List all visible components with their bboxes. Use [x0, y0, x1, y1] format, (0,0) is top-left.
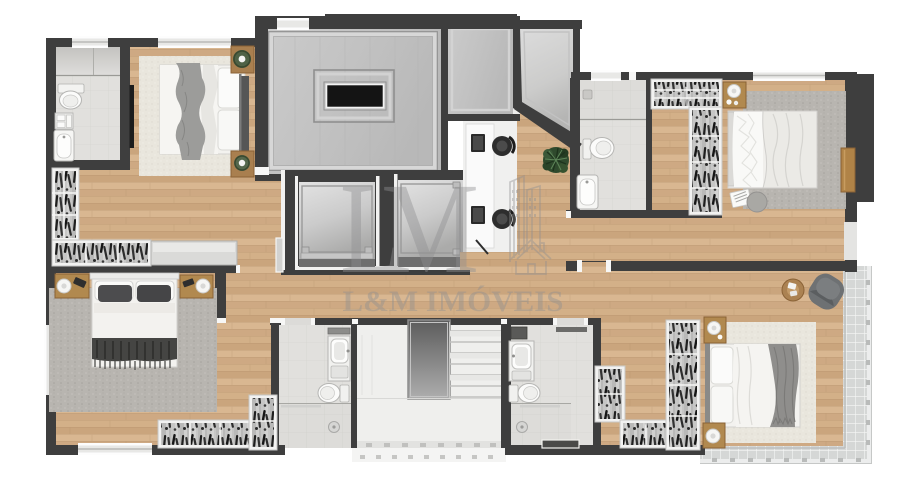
svg-text:M: M — [381, 157, 479, 301]
svg-text:L&M IMÓVEIS: L&M IMÓVEIS — [343, 285, 564, 318]
